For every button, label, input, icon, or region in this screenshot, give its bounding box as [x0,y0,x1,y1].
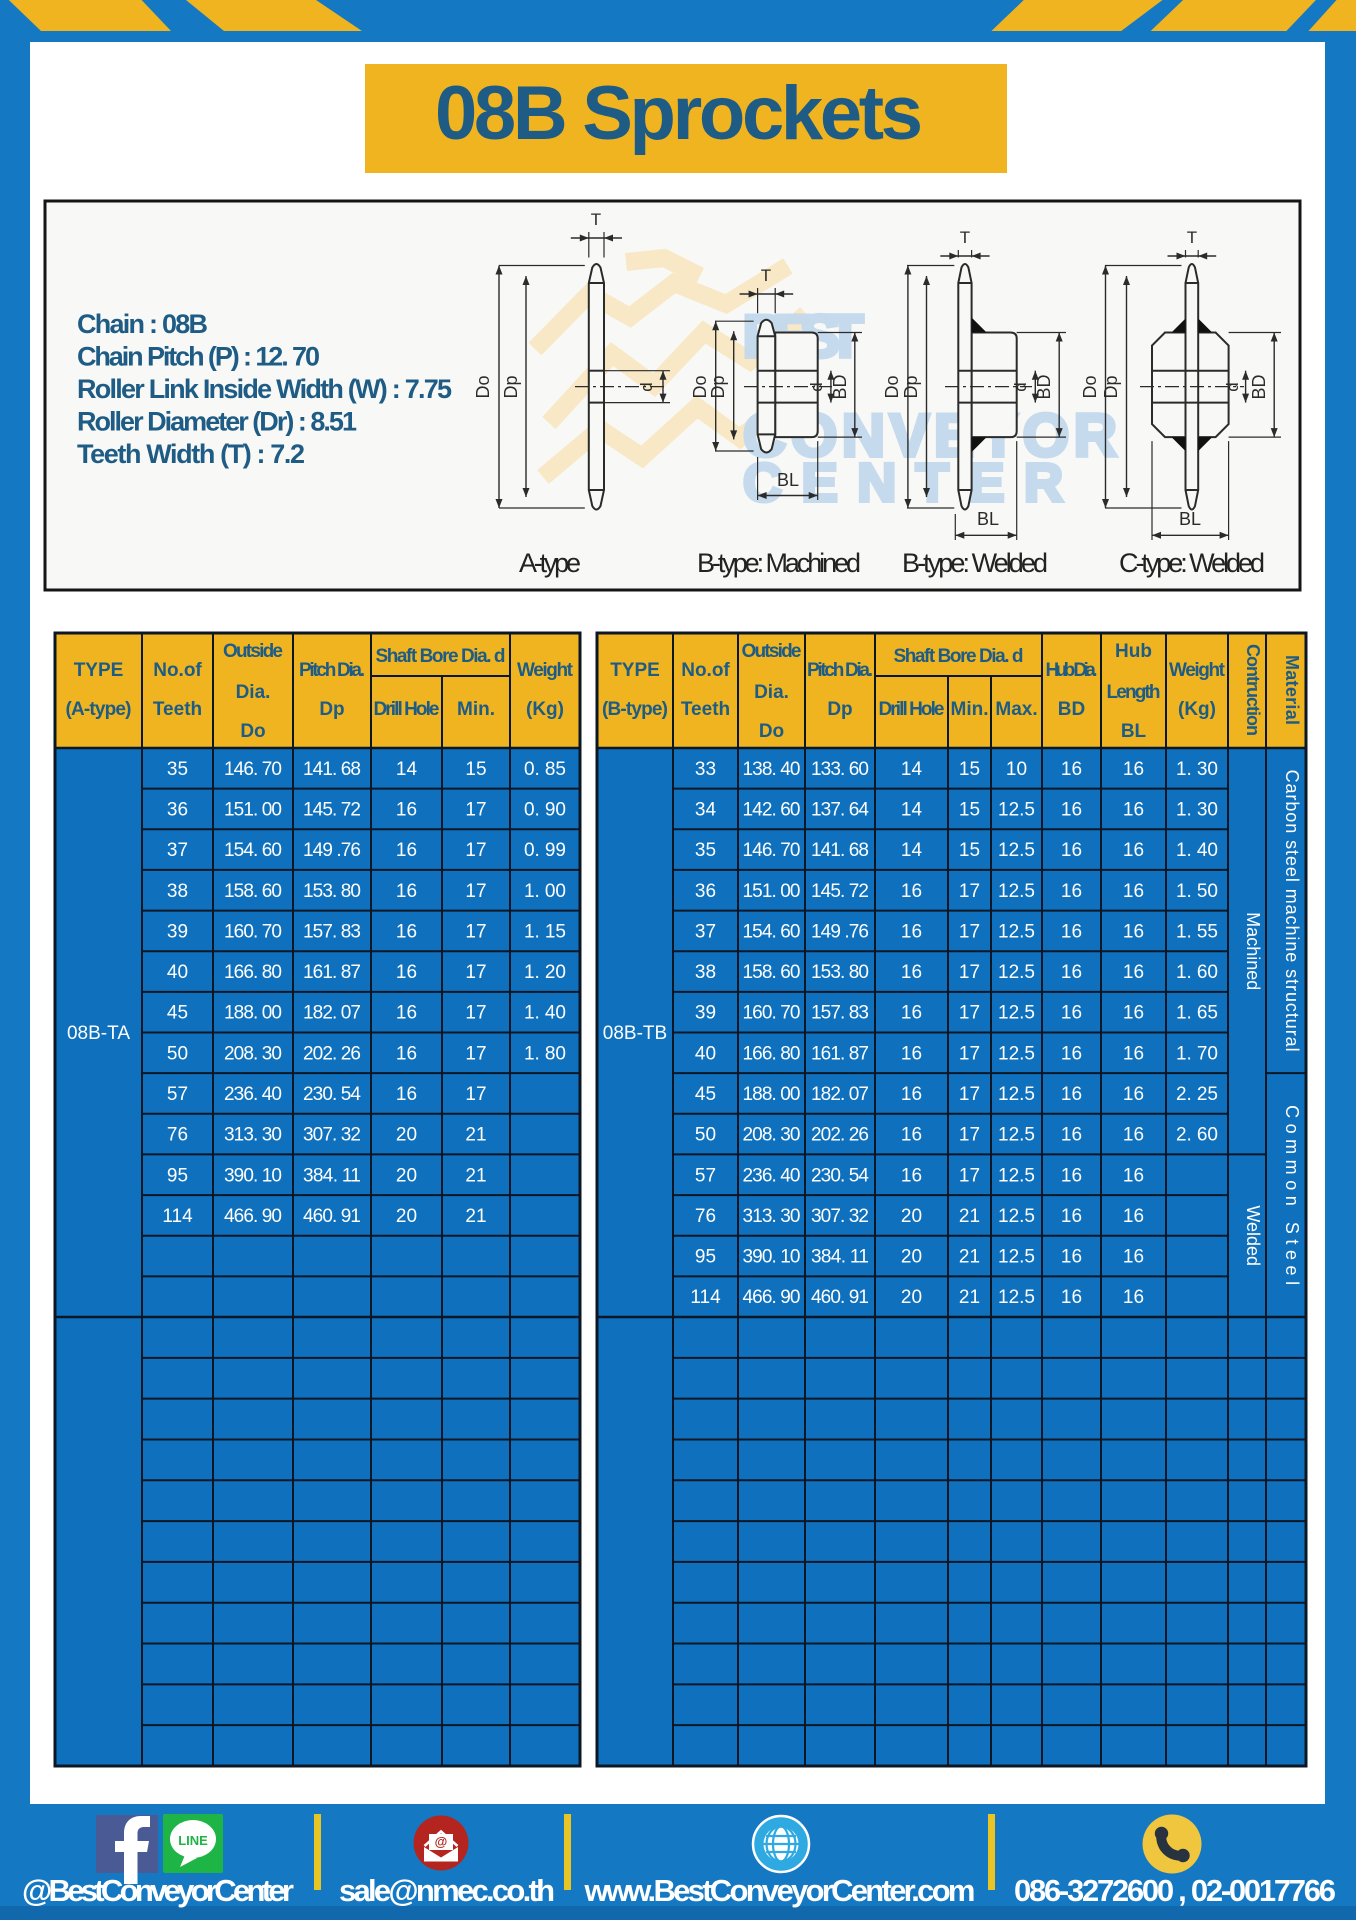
svg-text:T: T [1187,228,1197,247]
svg-text:39: 39 [167,921,188,942]
svg-text:Dia.: Dia. [236,682,271,703]
svg-text:17: 17 [465,881,486,902]
svg-text:16: 16 [1123,1003,1144,1024]
svg-text:230. 54: 230. 54 [811,1165,869,1186]
svg-text:Outside: Outside [223,641,283,662]
svg-text:38: 38 [167,881,188,902]
svg-text:202. 26: 202. 26 [303,1043,361,1064]
svg-text:57: 57 [695,1165,716,1186]
svg-text:16: 16 [396,921,417,942]
svg-text:(B-type): (B-type) [602,699,668,720]
svg-text:d: d [807,382,826,391]
svg-text:33: 33 [695,759,716,780]
svg-text:188. 00: 188. 00 [743,1084,801,1105]
svg-text:(Kg): (Kg) [1178,699,1216,720]
svg-text:16: 16 [1123,1043,1144,1064]
svg-text:1. 55: 1. 55 [1176,921,1218,942]
svg-text:12.5: 12.5 [998,881,1035,902]
svg-text:TYPE: TYPE [74,660,124,681]
svg-text:466. 90: 466. 90 [224,1206,282,1227]
svg-text:466. 90: 466. 90 [743,1287,801,1308]
svg-text:149 .76: 149 .76 [303,840,361,861]
svg-text:15: 15 [959,759,980,780]
svg-text:17: 17 [465,1003,486,1024]
svg-text:16: 16 [1061,840,1082,861]
svg-text:208. 30: 208. 30 [743,1125,801,1146]
svg-text:137. 64: 137. 64 [811,799,869,820]
svg-text:36: 36 [695,881,716,902]
svg-text:17: 17 [959,962,980,983]
svg-text:166. 80: 166. 80 [743,1043,801,1064]
svg-text:d: d [1223,382,1242,391]
svg-text:16: 16 [1061,1247,1082,1268]
svg-text:Dp: Dp [1101,375,1121,398]
svg-text:20: 20 [396,1165,417,1186]
svg-text:16: 16 [1123,1247,1144,1268]
svg-text:157. 83: 157. 83 [303,921,361,942]
svg-text:21: 21 [465,1206,486,1227]
svg-text:390. 10: 390. 10 [743,1247,801,1268]
svg-text:BL: BL [977,509,999,529]
svg-text:17: 17 [959,1084,980,1105]
svg-text:d: d [637,382,656,391]
svg-text:(Kg): (Kg) [526,699,564,720]
svg-text:1. 80: 1. 80 [524,1043,566,1064]
svg-text:No.of: No.of [681,660,730,681]
svg-text:17: 17 [959,1043,980,1064]
svg-text:230. 54: 230. 54 [303,1084,361,1105]
svg-text:Shaft Bore Dia. d: Shaft Bore Dia. d [376,646,506,667]
svg-text:21: 21 [959,1206,980,1227]
svg-text:20: 20 [901,1206,922,1227]
svg-text:16: 16 [1061,1084,1082,1105]
svg-text:15: 15 [959,799,980,820]
svg-text:d: d [1011,382,1030,391]
svg-text:08B Sprockets: 08B Sprockets [435,71,923,156]
svg-text:Common Steel: Common Steel [1282,1105,1302,1285]
svg-text:14: 14 [901,759,923,780]
svg-text:TYPE: TYPE [610,660,660,681]
svg-text:153. 80: 153. 80 [811,962,869,983]
svg-text:16: 16 [1061,1206,1082,1227]
svg-text:45: 45 [167,1003,188,1024]
svg-text:Material: Material [1282,655,1302,725]
svg-text:14: 14 [396,759,418,780]
svg-text:BL: BL [777,470,799,490]
svg-text:141. 68: 141. 68 [303,759,361,780]
svg-text:20: 20 [901,1287,922,1308]
svg-text:Dp: Dp [708,375,728,398]
svg-text:No.of: No.of [153,660,202,681]
svg-text:17: 17 [465,962,486,983]
svg-text:16: 16 [1123,1125,1144,1146]
svg-text:B-type: Welded: B-type: Welded [902,548,1048,578]
svg-text:20: 20 [901,1247,922,1268]
svg-text:BD: BD [830,374,850,399]
svg-text:149 .76: 149 .76 [811,921,869,942]
svg-text:www.BestConveyorCenter.com: www.BestConveyorCenter.com [584,1873,976,1908]
svg-text:158. 60: 158. 60 [224,881,282,902]
svg-text:Chain : 08B: Chain : 08B [77,309,208,339]
svg-text:16: 16 [1123,881,1144,902]
svg-text:208. 30: 208. 30 [224,1043,282,1064]
svg-text:16: 16 [396,1084,417,1105]
svg-text:Roller Diameter (Dr) : 8.51: Roller Diameter (Dr) : 8.51 [77,407,357,437]
svg-text:182. 07: 182. 07 [303,1003,361,1024]
svg-text:Dia.: Dia. [754,682,789,703]
svg-text:16: 16 [901,1084,922,1105]
svg-text:21: 21 [465,1125,486,1146]
svg-text:384. 11: 384. 11 [303,1165,361,1186]
svg-text:21: 21 [959,1287,980,1308]
svg-text:16: 16 [1061,962,1082,983]
svg-text:Do: Do [882,375,902,398]
svg-text:161. 87: 161. 87 [811,1043,869,1064]
svg-text:Weight: Weight [517,660,574,681]
svg-text:BL: BL [1121,721,1147,742]
svg-text:12.5: 12.5 [998,799,1035,820]
svg-text:16: 16 [901,1003,922,1024]
svg-text:1. 65: 1. 65 [1176,1003,1218,1024]
svg-text:12.5: 12.5 [998,1043,1035,1064]
svg-text:T: T [761,266,771,285]
svg-text:160. 70: 160. 70 [743,1003,801,1024]
svg-text:1. 20: 1. 20 [524,962,566,983]
svg-text:Outside: Outside [742,641,802,662]
svg-text:313. 30: 313. 30 [224,1125,282,1146]
svg-text:20: 20 [396,1206,417,1227]
svg-text:151. 00: 151. 00 [743,881,801,902]
svg-text:Carbon steel machine structur: Carbon steel machine structural [1282,770,1302,1052]
svg-text:12.5: 12.5 [998,1084,1035,1105]
svg-text:17: 17 [959,921,980,942]
svg-text:20: 20 [396,1125,417,1146]
svg-text:Contruction: Contruction [1243,644,1263,736]
svg-text:17: 17 [465,1084,486,1105]
svg-text:Weight: Weight [1169,660,1226,681]
svg-text:166. 80: 166. 80 [224,962,282,983]
svg-text:40: 40 [167,962,188,983]
svg-text:Length: Length [1107,682,1161,703]
svg-text:114: 114 [162,1206,193,1227]
svg-text:Hub Dia.: Hub Dia. [1046,660,1098,681]
svg-text:16: 16 [1123,1206,1144,1227]
svg-text:16: 16 [396,962,417,983]
svg-text:236. 40: 236. 40 [743,1165,801,1186]
svg-text:16: 16 [1061,1003,1082,1024]
svg-text:BD: BD [1249,374,1269,399]
svg-text:188. 00: 188. 00 [224,1003,282,1024]
svg-text:158. 60: 158. 60 [743,962,801,983]
svg-text:BL: BL [1179,509,1201,529]
svg-text:35: 35 [695,840,716,861]
svg-text:Max.: Max. [995,699,1037,720]
svg-text:BD: BD [1058,699,1085,720]
svg-text:1. 40: 1. 40 [1176,840,1218,861]
svg-text:15: 15 [465,759,486,780]
svg-text:@: @ [435,1834,448,1849]
svg-text:14: 14 [901,840,923,861]
svg-text:57: 57 [167,1084,188,1105]
svg-text:@BestConveyorCenter: @BestConveyorCenter [22,1873,294,1908]
svg-text:202. 26: 202. 26 [811,1125,869,1146]
svg-text:16: 16 [1123,1287,1144,1308]
svg-text:16: 16 [901,921,922,942]
svg-text:16: 16 [1061,759,1082,780]
svg-text:12.5: 12.5 [998,962,1035,983]
svg-text:141. 68: 141. 68 [811,840,869,861]
svg-text:45: 45 [695,1084,716,1105]
svg-text:1. 30: 1. 30 [1176,759,1218,780]
svg-text:Do: Do [473,375,493,398]
svg-text:Drill Hole: Drill Hole [879,699,945,720]
svg-text:BD: BD [1034,374,1054,399]
svg-text:Teeth: Teeth [681,699,730,720]
svg-text:16: 16 [1061,881,1082,902]
svg-text:1. 00: 1. 00 [524,881,566,902]
svg-text:Dp: Dp [319,699,344,720]
svg-text:76: 76 [167,1125,188,1146]
svg-text:12.5: 12.5 [998,1287,1035,1308]
svg-text:0. 99: 0. 99 [524,840,566,861]
svg-text:16: 16 [1061,1125,1082,1146]
svg-text:37: 37 [167,840,188,861]
svg-text:17: 17 [959,881,980,902]
svg-text:12.5: 12.5 [998,1003,1035,1024]
svg-text:12.5: 12.5 [998,921,1035,942]
svg-text:(A-type): (A-type) [66,699,132,720]
svg-text:15: 15 [959,840,980,861]
svg-text:17: 17 [959,1165,980,1186]
svg-text:17: 17 [465,1043,486,1064]
svg-text:2. 60: 2. 60 [1176,1125,1218,1146]
svg-text:146. 70: 146. 70 [224,759,282,780]
svg-text:17: 17 [959,1003,980,1024]
svg-text:40: 40 [695,1043,716,1064]
svg-text:16: 16 [901,1165,922,1186]
svg-text:17: 17 [465,921,486,942]
svg-text:16: 16 [1123,1165,1144,1186]
svg-text:154. 60: 154. 60 [224,840,282,861]
svg-text:Chain Pitch (P) : 12. 70: Chain Pitch (P) : 12. 70 [77,342,320,372]
svg-text:Dp: Dp [901,375,921,398]
svg-text:76: 76 [695,1206,716,1227]
svg-text:157. 83: 157. 83 [811,1003,869,1024]
svg-text:35: 35 [167,759,188,780]
svg-text:08B-TB: 08B-TB [603,1023,667,1044]
svg-text:460. 91: 460. 91 [303,1206,361,1227]
svg-text:16: 16 [1061,799,1082,820]
svg-text:Pitch Dia.: Pitch Dia. [299,660,365,681]
svg-text:161. 87: 161. 87 [303,962,361,983]
svg-text:086-3272600 , 02-0017766: 086-3272600 , 02-0017766 [1014,1873,1336,1908]
svg-text:16: 16 [901,1043,922,1064]
svg-text:Teeth: Teeth [153,699,202,720]
svg-text:16: 16 [396,881,417,902]
svg-text:Do: Do [1080,375,1100,398]
svg-text:153. 80: 153. 80 [303,881,361,902]
svg-text:16: 16 [396,1003,417,1024]
svg-text:390. 10: 390. 10 [224,1165,282,1186]
svg-text:34: 34 [695,799,717,820]
svg-text:16: 16 [1123,1084,1144,1105]
svg-text:151. 00: 151. 00 [224,799,282,820]
svg-text:16: 16 [1123,759,1144,780]
svg-text:sale@nmec.co.th: sale@nmec.co.th [339,1873,555,1908]
svg-text:16: 16 [901,962,922,983]
svg-text:T: T [591,210,601,229]
svg-text:146. 70: 146. 70 [743,840,801,861]
svg-text:1. 15: 1. 15 [524,921,566,942]
svg-text:21: 21 [465,1165,486,1186]
svg-text:Shaft Bore Dia. d: Shaft Bore Dia. d [894,646,1024,667]
svg-text:Machined: Machined [1243,912,1263,990]
svg-text:Dp: Dp [501,375,521,398]
svg-text:12.5: 12.5 [998,840,1035,861]
svg-text:16: 16 [901,1125,922,1146]
svg-text:LINE: LINE [178,1833,208,1848]
svg-text:Do: Do [690,375,710,398]
svg-text:16: 16 [1061,1165,1082,1186]
svg-text:307. 32: 307. 32 [811,1206,869,1227]
svg-text:37: 37 [695,921,716,942]
svg-text:Do: Do [240,721,265,742]
svg-text:145. 72: 145. 72 [303,799,361,820]
svg-text:08B-TA: 08B-TA [67,1023,130,1044]
svg-text:0. 85: 0. 85 [524,759,566,780]
svg-text:50: 50 [695,1125,716,1146]
svg-text:1. 40: 1. 40 [524,1003,566,1024]
svg-text:2. 25: 2. 25 [1176,1084,1218,1105]
svg-text:16: 16 [396,799,417,820]
svg-text:0. 90: 0. 90 [524,799,566,820]
svg-text:A-type: A-type [519,548,581,578]
svg-text:Welded: Welded [1243,1205,1263,1266]
svg-text:17: 17 [465,799,486,820]
svg-text:16: 16 [396,840,417,861]
svg-text:Roller Link Inside Width (W): Roller Link Inside Width (W) : 7.75 [77,374,452,404]
svg-text:Teeth Width (T) : 7.2: Teeth Width (T) : 7.2 [77,439,305,469]
svg-text:14: 14 [901,799,923,820]
svg-text:17: 17 [959,1125,980,1146]
svg-text:17: 17 [465,840,486,861]
svg-text:Min.: Min. [951,699,989,720]
svg-text:Pitch Dia.: Pitch Dia. [807,660,873,681]
svg-text:313. 30: 313. 30 [743,1206,801,1227]
svg-text:133. 60: 133. 60 [811,759,869,780]
svg-text:114: 114 [690,1287,721,1308]
svg-text:1. 70: 1. 70 [1176,1043,1218,1064]
svg-text:1. 60: 1. 60 [1176,962,1218,983]
svg-text:16: 16 [1123,840,1144,861]
svg-text:16: 16 [1123,921,1144,942]
svg-text:38: 38 [695,962,716,983]
svg-text:10: 10 [1006,759,1027,780]
svg-text:21: 21 [959,1247,980,1268]
svg-text:145. 72: 145. 72 [811,881,869,902]
svg-text:1. 50: 1. 50 [1176,881,1218,902]
svg-text:307. 32: 307. 32 [303,1125,361,1146]
svg-text:Hub: Hub [1115,641,1152,662]
svg-text:Min.: Min. [457,699,495,720]
svg-text:16: 16 [1061,1287,1082,1308]
svg-text:Drill Hole: Drill Hole [374,699,440,720]
svg-text:39: 39 [695,1003,716,1024]
svg-text:C-type: Welded: C-type: Welded [1119,548,1265,578]
svg-text:16: 16 [1061,921,1082,942]
svg-text:236. 40: 236. 40 [224,1084,282,1105]
svg-text:1. 30: 1. 30 [1176,799,1218,820]
svg-text:182. 07: 182. 07 [811,1084,869,1105]
svg-text:95: 95 [167,1165,188,1186]
svg-text:16: 16 [1123,962,1144,983]
svg-text:142. 60: 142. 60 [743,799,801,820]
svg-text:50: 50 [167,1043,188,1064]
svg-text:B-type: Machined: B-type: Machined [697,548,861,578]
svg-text:12.5: 12.5 [998,1206,1035,1227]
svg-text:160. 70: 160. 70 [224,921,282,942]
svg-text:16: 16 [1123,799,1144,820]
svg-text:12.5: 12.5 [998,1247,1035,1268]
svg-text:95: 95 [695,1247,716,1268]
svg-text:138. 40: 138. 40 [743,759,801,780]
svg-text:36: 36 [167,799,188,820]
svg-text:384. 11: 384. 11 [811,1247,869,1268]
svg-text:12.5: 12.5 [998,1165,1035,1186]
svg-text:16: 16 [901,881,922,902]
svg-text:Do: Do [759,721,784,742]
svg-text:460. 91: 460. 91 [811,1287,869,1308]
svg-text:16: 16 [1061,1043,1082,1064]
svg-text:154. 60: 154. 60 [743,921,801,942]
svg-text:T: T [960,228,970,247]
svg-text:16: 16 [396,1043,417,1064]
svg-text:12.5: 12.5 [998,1125,1035,1146]
svg-text:Dp: Dp [827,699,852,720]
